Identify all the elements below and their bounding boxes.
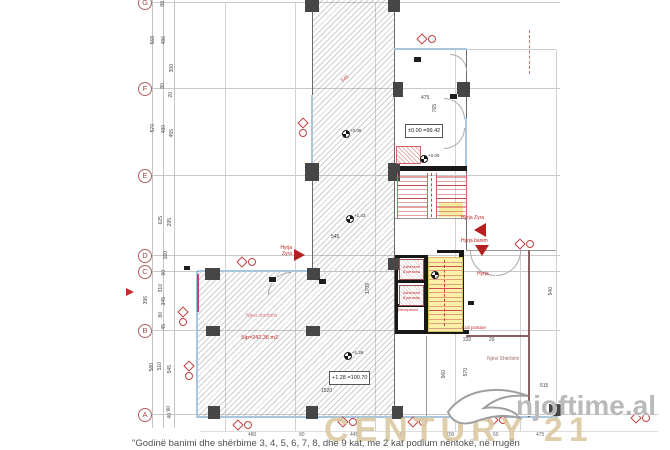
section-marker xyxy=(126,288,134,296)
axis-marker-pair xyxy=(418,35,436,43)
door-arc xyxy=(444,98,465,119)
grid-bubble-A: A xyxy=(138,408,152,422)
benchmark-label: +1.28 xyxy=(352,350,363,355)
axis-marker-pair xyxy=(179,308,187,326)
door-arc xyxy=(444,128,465,149)
column xyxy=(205,268,220,280)
dim-label: 90 xyxy=(166,406,172,412)
elevator-1-label-line2: 8 persona xyxy=(403,270,420,275)
dim-label: 29 xyxy=(489,337,495,343)
column xyxy=(306,326,320,336)
maroon-wall-mid xyxy=(466,335,528,337)
reception-label: Recepsioni xyxy=(398,308,418,313)
dim-label: 80 xyxy=(158,312,164,318)
dim-label: 765 xyxy=(432,104,438,112)
dim-label: 300 xyxy=(169,64,175,72)
entrance-arrow-left xyxy=(474,223,486,237)
panel-icon xyxy=(450,94,458,100)
wing-top-line xyxy=(466,49,556,50)
stair-flight-left xyxy=(397,173,428,218)
dim-label: 568 xyxy=(150,36,156,44)
benchmark-icon xyxy=(431,271,439,279)
railing-accent xyxy=(197,274,199,312)
room-name-label: Njesi sherbimi xyxy=(246,314,277,320)
level-box-room: +1.28 =100.70 xyxy=(329,371,370,385)
column xyxy=(305,163,319,181)
blue-wall-wing-right xyxy=(465,118,467,166)
core-hatched-area xyxy=(312,0,394,271)
column xyxy=(208,406,220,419)
panel-icon xyxy=(184,266,191,271)
column xyxy=(388,0,400,12)
blue-wall-core xyxy=(311,95,313,167)
dim-label: 570 xyxy=(150,124,156,132)
core-wall-right xyxy=(394,0,395,418)
column xyxy=(206,326,220,336)
floor-plan: Ashensori 8 persona Ashensori 8 persona … xyxy=(0,0,670,450)
dim-label: 510 xyxy=(157,362,163,370)
column xyxy=(457,82,470,97)
column xyxy=(306,406,318,419)
grid-line-v6 xyxy=(556,50,557,418)
stair-flight-right xyxy=(436,173,467,218)
door-arc xyxy=(496,251,521,276)
dim-label: 480 xyxy=(161,125,167,133)
mailboxes-label: Kuti postare xyxy=(462,325,486,330)
grid-bubble-D: D xyxy=(138,249,152,263)
benchmark-label: +0.06 xyxy=(350,128,361,133)
benchmark-icon xyxy=(346,215,354,223)
dim-label: 310 xyxy=(158,284,164,292)
dim-label: 80 xyxy=(160,83,166,89)
watermark-njoftime: njoftime.al xyxy=(516,390,656,422)
dim-label: 580 xyxy=(149,363,155,371)
stair-centerline-lower xyxy=(444,260,445,326)
benchmark-icon xyxy=(344,352,352,360)
hall-wall-black xyxy=(437,250,464,253)
axis-marker-pair xyxy=(185,362,193,380)
dim-label: 1709 xyxy=(365,283,371,294)
benchmark-icon xyxy=(420,155,428,163)
entry-ramp xyxy=(396,146,421,164)
benchmark-icon xyxy=(342,130,350,138)
dim-label: 570 xyxy=(463,368,469,376)
stair-centerline-upper xyxy=(431,173,432,217)
benchmark-label: +1.43 xyxy=(354,213,365,218)
dim-label: 80 xyxy=(160,1,166,7)
dim-label: 220 xyxy=(463,337,471,343)
grid-bubble-B: B xyxy=(138,324,152,338)
dim-label: 396 xyxy=(143,296,149,304)
dim-label: 455 xyxy=(169,129,175,137)
grid-bubble-G: G xyxy=(138,0,152,10)
elevator-2-label-line2: 8 persona xyxy=(403,296,420,301)
elevator-1: Ashensori 8 persona xyxy=(399,259,424,280)
elevator-2: Ashensori 8 persona xyxy=(399,285,424,306)
door-arc xyxy=(450,54,467,71)
dim-label: 545 xyxy=(331,234,339,240)
dashed-boundary-line xyxy=(529,30,530,74)
dim-label: 345 xyxy=(161,297,167,305)
dim-label: 625 xyxy=(158,216,164,224)
hall-label: Hyrja xyxy=(477,272,489,278)
axis-marker-pair xyxy=(238,258,256,266)
dim-label: 295 xyxy=(167,218,173,226)
axis-marker-pair xyxy=(299,119,307,137)
grid-bubble-F: F xyxy=(138,82,152,96)
dim-label: 560 xyxy=(441,370,447,378)
panel-icon xyxy=(269,277,277,283)
dim-label: 45 xyxy=(161,324,167,330)
axis-marker-pair xyxy=(234,421,252,429)
dim-label: 545 xyxy=(167,365,173,373)
benchmark-label: +0.00 xyxy=(428,153,439,158)
plan-caption: "Godinë banimi dhe shërbime 3, 4, 5, 6, … xyxy=(132,438,520,449)
stair-lower xyxy=(428,257,463,332)
column xyxy=(393,82,403,97)
entrance-office-left-label-line2: Zyra xyxy=(258,252,292,258)
dim-label: 90 xyxy=(161,270,167,276)
dim-label: 160 xyxy=(163,251,169,259)
entrance-office-label: Hyrja Zyra xyxy=(461,216,484,222)
dim-label: 40 xyxy=(167,413,173,419)
dim-label: 20 xyxy=(168,92,174,98)
entrance-arrow-right xyxy=(294,249,305,261)
grid-bubble-E: E xyxy=(138,169,152,183)
axis-marker-pair xyxy=(516,240,534,248)
dim-chain-2 xyxy=(163,0,164,428)
dim-label: 540 xyxy=(548,287,554,295)
blue-wall-wing-top xyxy=(394,48,467,50)
grid-bubble-C: C xyxy=(138,265,152,279)
entrance-arrow-down xyxy=(475,245,489,256)
room-area-label: Sip=242.36 m2 xyxy=(241,335,278,341)
stair-landing-line xyxy=(395,218,467,219)
panel-icon xyxy=(468,301,475,306)
panel-icon xyxy=(319,279,327,285)
entrance-residential-label: Hyrja banim xyxy=(461,239,488,245)
service-room-label: Njësi Shërbimi xyxy=(487,357,519,363)
dim-label: 486 xyxy=(161,36,167,44)
service-wall-left xyxy=(426,336,427,417)
dim-label: 475 xyxy=(421,95,429,101)
column xyxy=(305,0,319,12)
panel-icon xyxy=(414,57,422,63)
stair-wall-top xyxy=(395,166,467,171)
dim-label: 515 xyxy=(540,383,548,389)
dim-label: 1520 xyxy=(321,388,332,394)
level-box-entry: ±0.00 =99.42 xyxy=(405,124,443,138)
